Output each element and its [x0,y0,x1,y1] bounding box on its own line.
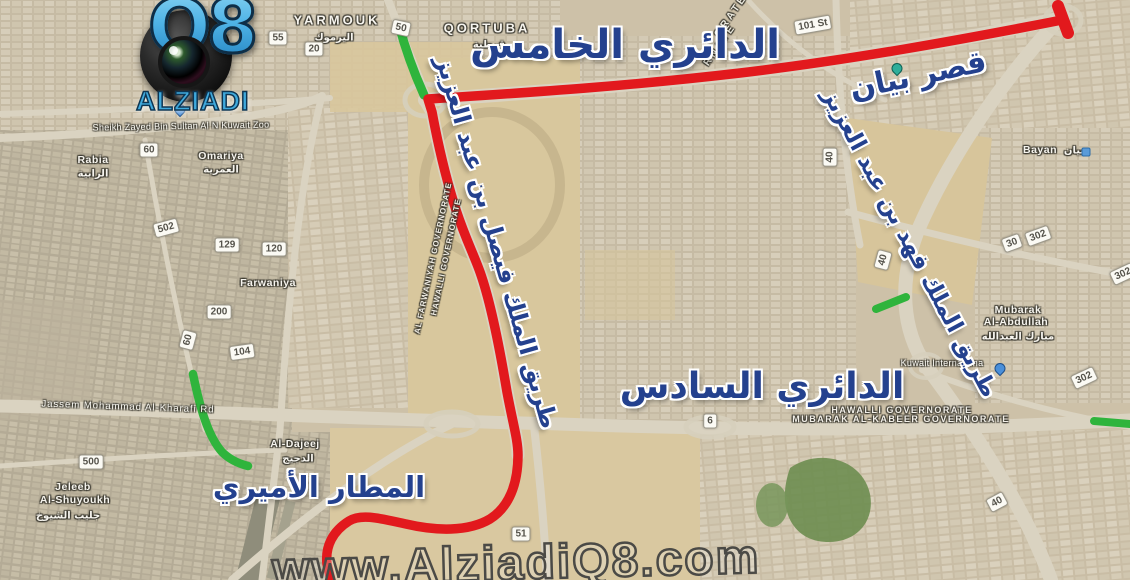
route-shield: 120 [262,242,287,257]
route-shield: 502 [152,218,180,239]
route-shield: 104 [229,343,256,361]
map-area-label: Al-Shuyoukh [40,494,110,506]
map-area-label: Rabia [77,154,108,166]
route-shield: 60 [139,143,158,158]
map-area-label: Farwaniya [240,277,296,289]
map-area-label: الدجيج [282,454,313,465]
route-shield: 6 [703,414,717,429]
map-area-label: Jeleeb [55,481,91,493]
map-area-label: الرابية [78,169,109,180]
map-area-label: Jassem Mohammad Al-Kharafi Rd [41,398,214,415]
sixth-ring-road-label: الدائري السادس [602,366,922,407]
map-area-label: مبارك العبدالله [982,332,1054,343]
amiri-airport-label: المطار الأميري [194,470,444,504]
route-shield: 55 [268,31,287,46]
route-shield: 40 [823,147,838,166]
map-area-label: Bayan [1023,144,1057,156]
route-shield: 20 [304,42,323,57]
map-area-label: MUBARAK AL-KABEER GOVERNORATE [792,414,1010,424]
map-area-label: YARMOUK [294,13,381,28]
route-shield: 60 [178,329,197,351]
map-area-label: Mubarak [995,304,1042,316]
map-screenshot: YARMOUKاليرموكQORTUBAقرطبةRabiaالرابيةOm… [0,0,1130,580]
route-shield: 302 [1070,366,1099,390]
map-area-label: Al-Abdullah [984,316,1048,328]
route-shield: 302 [1024,225,1052,248]
route-shield: 40 [873,249,892,271]
route-shield: 129 [215,238,240,253]
route-shield: 40 [985,491,1009,513]
fifth-ring-road-label: الدائري الخامس [465,22,785,68]
camera-lens-glass-icon [158,36,210,88]
map-area-label: Al-Dajeej [270,438,319,450]
route-shield: 302 [1109,262,1130,286]
map-area-label: العمرية [203,165,239,176]
route-shield: 50 [390,19,412,38]
logo-brand-name: ALZIADI [136,86,249,117]
map-area-label: جليب الشيوخ [36,511,100,522]
route-shield: 200 [207,305,232,320]
building-poi-icon [1082,148,1091,157]
map-area-label: Omariya [198,150,244,162]
route-shield: 30 [1000,233,1023,254]
alziadi-q8-logo: Q8 ALZIADI [52,0,252,122]
route-shield: 101 St [793,14,833,35]
route-shield: 500 [79,455,104,470]
